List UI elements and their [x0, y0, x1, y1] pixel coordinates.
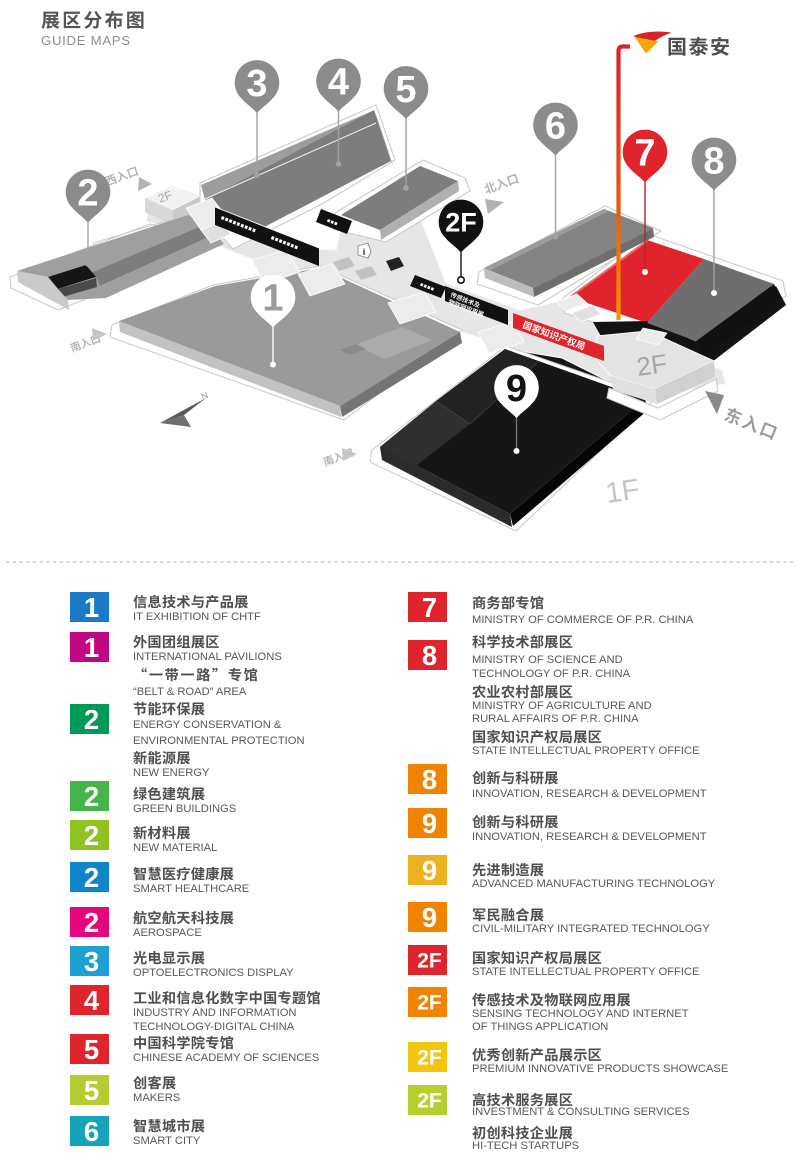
svg-text:NEW MATERIAL: NEW MATERIAL	[133, 842, 217, 854]
svg-text:6: 6	[84, 1116, 99, 1147]
svg-text:2F: 2F	[417, 1047, 442, 1070]
svg-text:8: 8	[422, 764, 437, 795]
svg-text:IT EXHIBITION OF CHTF: IT EXHIBITION OF CHTF	[133, 611, 261, 623]
svg-text:OPTOELECTRONICS DISPLAY: OPTOELECTRONICS DISPLAY	[133, 967, 294, 979]
svg-text:INVESTMENT & CONSULTING SERVIC: INVESTMENT & CONSULTING SERVICES	[472, 1106, 690, 1118]
svg-text:7: 7	[422, 592, 437, 623]
svg-text:2F: 2F	[445, 208, 477, 238]
svg-text:6: 6	[545, 105, 566, 147]
svg-text:1: 1	[262, 277, 283, 319]
svg-text:MAKERS: MAKERS	[133, 1092, 180, 1104]
svg-text:ADVANCED MANUFACTURING TECHNOL: ADVANCED MANUFACTURING TECHNOLOGY	[472, 878, 716, 890]
svg-text:i: i	[363, 247, 366, 257]
svg-text:2: 2	[84, 704, 99, 735]
svg-text:2: 2	[84, 820, 99, 851]
svg-text:3: 3	[246, 63, 267, 105]
svg-text:3: 3	[84, 946, 99, 977]
svg-text:SMART HEALTHCARE: SMART HEALTHCARE	[133, 883, 249, 895]
svg-text:GUIDE MAPS: GUIDE MAPS	[41, 33, 131, 48]
svg-text:2: 2	[84, 862, 99, 893]
svg-text:“BELT & ROAD” AREA: “BELT & ROAD” AREA	[133, 686, 247, 698]
svg-text:2F: 2F	[417, 1090, 442, 1113]
svg-text:9: 9	[422, 902, 437, 933]
svg-text:1: 1	[84, 592, 99, 623]
svg-text:8: 8	[703, 140, 724, 182]
svg-text:STATE INTELLECTUAL PROPERTY OF: STATE INTELLECTUAL PROPERTY OFFICE	[472, 745, 700, 757]
svg-text:GREEN BUILDINGS: GREEN BUILDINGS	[133, 803, 236, 815]
svg-text:ENVIRONMENTAL PROTECTION: ENVIRONMENTAL PROTECTION	[133, 735, 305, 747]
svg-text:ENERGY CONSERVATION &: ENERGY CONSERVATION &	[133, 719, 282, 731]
svg-text:STATE INTELLECTUAL PROPERTY OF: STATE INTELLECTUAL PROPERTY OFFICE	[472, 966, 700, 978]
svg-text:MINISTRY OF SCIENCE AND: MINISTRY OF SCIENCE AND	[472, 654, 623, 666]
svg-text:INNOVATION, RESEARCH & DEVELOP: INNOVATION, RESEARCH & DEVELOPMENT	[472, 788, 707, 800]
svg-text:9: 9	[422, 855, 437, 886]
svg-text:7: 7	[634, 132, 655, 174]
svg-text:5: 5	[395, 69, 416, 111]
svg-text:SMART CITY: SMART CITY	[133, 1135, 201, 1147]
svg-text:CHINESE ACADEMY OF SCIENCES: CHINESE ACADEMY OF SCIENCES	[133, 1052, 319, 1064]
svg-text:INDUSTRY AND INFORMATION: INDUSTRY AND INFORMATION	[133, 1007, 296, 1019]
svg-text:1F: 1F	[604, 474, 642, 510]
svg-text:N: N	[200, 390, 210, 402]
svg-text:SENSING TECHNOLOGY AND INTERNE: SENSING TECHNOLOGY AND INTERNET	[472, 1008, 689, 1020]
svg-text:RURAL AFFAIRS OF P.R. CHINA: RURAL AFFAIRS OF P.R. CHINA	[472, 713, 639, 725]
svg-text:2F: 2F	[417, 992, 442, 1015]
svg-text:CIVIL-MILITARY INTEGRATED TECH: CIVIL-MILITARY INTEGRATED TECHNOLOGY	[472, 923, 710, 935]
svg-text:MINISTRY OF AGRICULTURE AND: MINISTRY OF AGRICULTURE AND	[472, 700, 652, 712]
svg-text:PREMIUM INNOVATIVE PRODUCTS SH: PREMIUM INNOVATIVE PRODUCTS SHOWCASE	[472, 1063, 728, 1075]
svg-text:HI-TECH STARTUPS: HI-TECH STARTUPS	[472, 1140, 579, 1152]
svg-text:9: 9	[422, 808, 437, 839]
svg-text:NEW ENERGY: NEW ENERGY	[133, 767, 210, 779]
svg-text:2: 2	[84, 907, 99, 938]
svg-text:8: 8	[422, 640, 437, 671]
svg-text:OF THINGS APPLICATION: OF THINGS APPLICATION	[472, 1021, 608, 1033]
svg-text:AEROSPACE: AEROSPACE	[133, 927, 202, 939]
svg-text:INNOVATION, RESEARCH & DEVELOP: INNOVATION, RESEARCH & DEVELOPMENT	[472, 831, 707, 843]
svg-text:4: 4	[84, 985, 100, 1016]
svg-text:INTERNATIONAL PAVILIONS: INTERNATIONAL PAVILIONS	[133, 651, 282, 663]
svg-text:2F: 2F	[417, 950, 442, 973]
svg-text:2F: 2F	[635, 348, 669, 382]
svg-text:1: 1	[84, 632, 99, 663]
svg-text:TECHNOLOGY-DIGITAL CHINA: TECHNOLOGY-DIGITAL CHINA	[133, 1021, 295, 1033]
svg-text:4: 4	[328, 61, 349, 103]
svg-text:5: 5	[84, 1075, 99, 1106]
svg-text:2: 2	[84, 781, 99, 812]
svg-text:9: 9	[506, 368, 527, 410]
svg-text:TECHNOLOGY OF P.R. CHINA: TECHNOLOGY OF P.R. CHINA	[472, 668, 631, 680]
svg-text:MINISTRY OF COMMERCE OF P.R. C: MINISTRY OF COMMERCE OF P.R. CHINA	[472, 614, 694, 626]
svg-text:5: 5	[84, 1034, 99, 1065]
svg-text:2: 2	[77, 172, 98, 214]
